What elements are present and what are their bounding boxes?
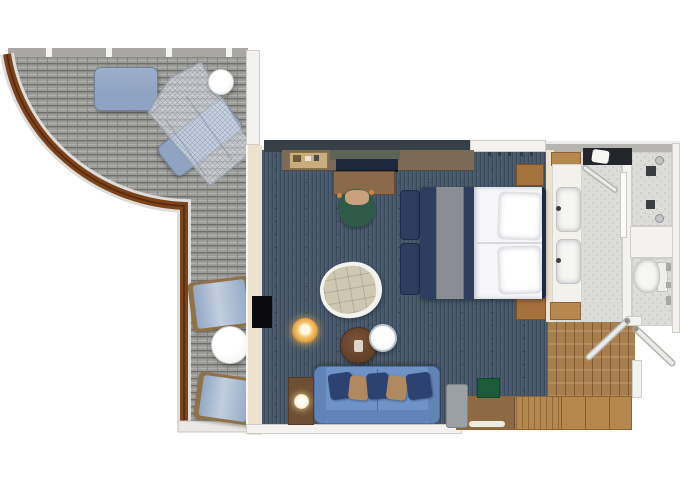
sofa-back xyxy=(325,410,429,423)
curtain-dot xyxy=(520,152,523,156)
deck-chair-pad xyxy=(198,375,251,422)
deck-round-table xyxy=(211,326,249,364)
foot-bench xyxy=(400,190,420,240)
entry-wall-stub xyxy=(632,360,642,398)
balcony-side-wall xyxy=(246,50,260,145)
curtain-dot xyxy=(488,152,491,156)
faucet xyxy=(556,206,561,211)
wall-tv xyxy=(252,296,272,328)
faucet xyxy=(556,258,561,263)
pillow xyxy=(497,191,543,241)
wardrobe-divider xyxy=(561,397,562,429)
door-hinge-corner xyxy=(626,316,642,326)
shower-drain xyxy=(655,156,664,165)
sofa-pillow-navy xyxy=(405,371,432,400)
table-tray xyxy=(354,340,363,352)
king-bed xyxy=(420,187,546,299)
sliding-shower-door xyxy=(620,172,627,238)
shower-drain xyxy=(655,214,664,223)
railing-post xyxy=(106,48,112,57)
nightstand xyxy=(516,298,546,320)
toilet-fixture xyxy=(666,296,671,305)
bathroom-corridor-floor xyxy=(580,150,622,322)
toilet-fixture xyxy=(666,282,671,288)
top-wall-white xyxy=(470,140,546,152)
railing-post xyxy=(226,48,232,57)
cabin-bottom-wall xyxy=(246,424,462,434)
headboard xyxy=(542,187,546,299)
towels xyxy=(591,149,610,164)
amber-stool xyxy=(292,318,318,344)
toilet-bowl xyxy=(633,259,660,293)
slatted-cabinet xyxy=(516,397,561,429)
wardrobe-divider xyxy=(585,397,586,429)
shower-control xyxy=(646,166,656,176)
tray-item xyxy=(305,156,311,161)
deck-chair xyxy=(187,275,255,332)
wardrobe-row xyxy=(456,396,632,430)
sun-lounger xyxy=(94,67,158,111)
white-side-table xyxy=(369,324,397,352)
foot-bench xyxy=(400,243,420,295)
wardrobe-divider xyxy=(609,397,610,429)
bed-runner xyxy=(436,187,464,299)
desk-chair-seat xyxy=(345,190,369,205)
gray-stool xyxy=(446,384,468,428)
railing-post xyxy=(166,48,172,57)
right-outer-wall xyxy=(672,143,680,333)
deck-chair-pad xyxy=(193,279,250,329)
cabin-left-wall xyxy=(246,145,262,435)
bed-split-line xyxy=(474,242,546,244)
vanity-cap-bottom xyxy=(550,302,581,320)
shower-control xyxy=(646,200,655,209)
green-bench xyxy=(477,378,500,398)
railing-post xyxy=(46,48,52,57)
dresser-tray xyxy=(469,421,505,427)
curtain-dot xyxy=(498,152,501,156)
shower-room-floor xyxy=(632,152,672,226)
curtain-dot xyxy=(508,152,511,156)
suite-floor-plan: Cruise ship suite floor plan xyxy=(0,0,680,491)
tray-item xyxy=(293,155,301,162)
chair-armrest xyxy=(369,190,374,195)
sofa xyxy=(314,366,440,424)
pillow xyxy=(497,245,543,295)
chair-armrest xyxy=(337,193,342,198)
nightstand xyxy=(516,164,544,186)
entry-hall-floor xyxy=(547,322,635,397)
balcony-round-table xyxy=(208,69,234,95)
armchair-cushion xyxy=(320,262,379,317)
tray-item xyxy=(314,155,319,161)
table-lamp xyxy=(294,394,309,409)
toilet-fixture xyxy=(666,263,671,271)
shower-toilet-divider xyxy=(630,226,673,258)
balcony-top-wall xyxy=(8,48,248,57)
curtain-dot xyxy=(530,152,533,156)
